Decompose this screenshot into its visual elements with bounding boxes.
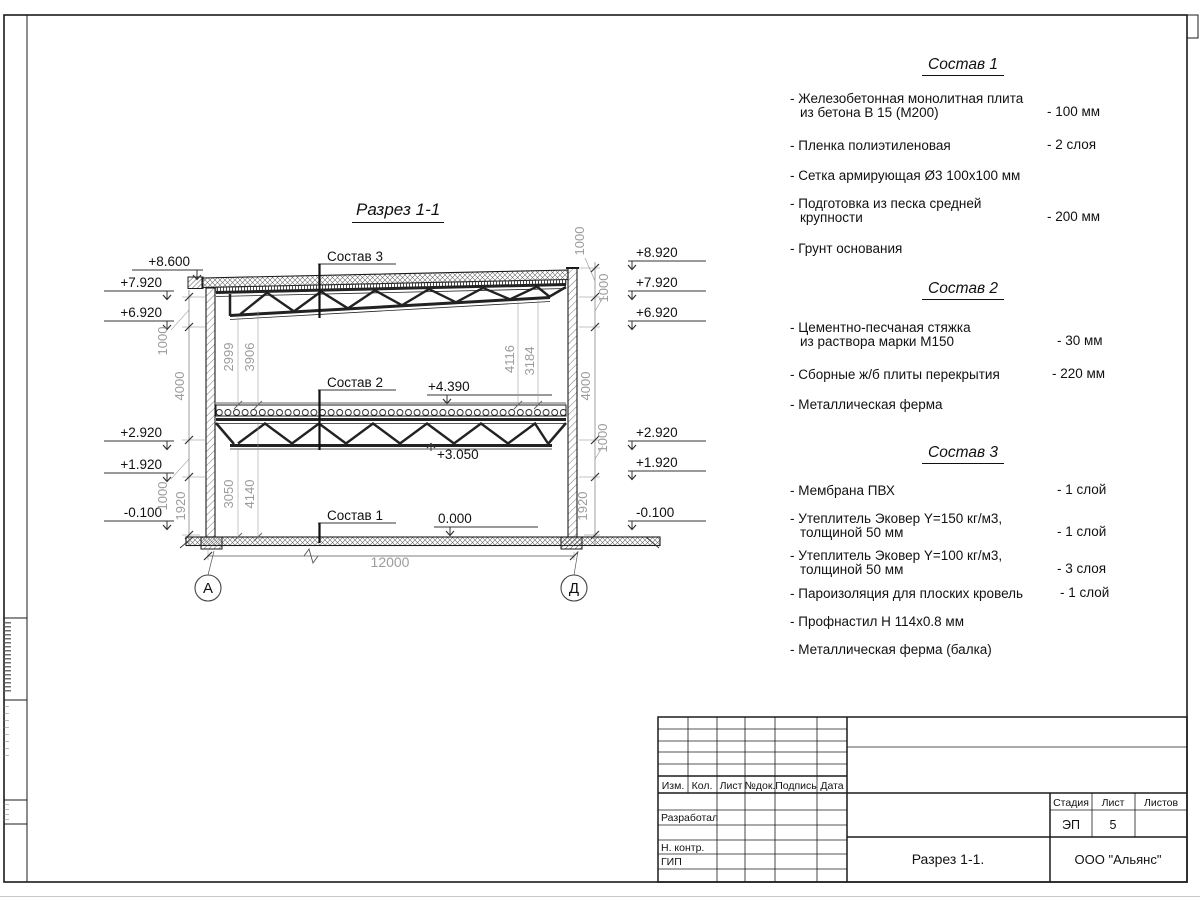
sostav1-label: Состав 1 xyxy=(327,508,383,523)
elev-r-8920: +8.920 xyxy=(628,245,706,270)
item-line: - Металлическая ферма xyxy=(790,398,1190,412)
item-value: - 100 мм xyxy=(1047,105,1100,119)
ground-slab xyxy=(180,537,660,549)
elev-l-1920: +1.920 xyxy=(104,457,174,482)
item-line: - Профнастил Н 114х0.8 мм xyxy=(790,615,1190,629)
tb-col-izm: Изм. xyxy=(662,780,685,792)
list-item: - Утеплитель Эковер Y=100 кг/м3, толщино… xyxy=(790,549,1190,577)
item-value: - 1 слой xyxy=(1057,483,1106,497)
list-item: - Пароизоляция для плоских кровель - 1 с… xyxy=(790,587,1190,601)
tb-sheet-value: 5 xyxy=(1110,818,1117,832)
dim-text: 1000 xyxy=(596,274,611,303)
item-line: крупности xyxy=(790,211,1190,225)
dim-text: 3050 xyxy=(221,480,236,509)
composition-title-text: Состав 1 xyxy=(922,56,1004,76)
dim-text: 1000 xyxy=(155,482,170,511)
composition-3-title: Состав 3 xyxy=(770,446,1156,460)
dim-chain-left: 1000 4000 1000 1920 xyxy=(155,290,206,545)
dim-text: 1000 xyxy=(155,327,170,356)
list-item: - Профнастил Н 114х0.8 мм xyxy=(790,615,1190,629)
elevation-marks-left: +8.600 +7.920 +6.920 xyxy=(104,254,203,530)
tb-stage-value: ЭП xyxy=(1062,818,1080,832)
list-item: - Утеплитель Эковер Y=150 кг/м3, толщино… xyxy=(790,512,1190,540)
item-value: - 30 мм xyxy=(1057,334,1103,348)
level-floor1: 0.000 xyxy=(438,511,472,526)
elev-text: +7.920 xyxy=(636,275,678,290)
item-value: - 1 слой xyxy=(1060,586,1109,600)
list-item: - Сборные ж/б плиты перекрытия - 220 мм xyxy=(790,368,1190,382)
elev-l-6920: +6.920 xyxy=(104,305,174,330)
item-line: - Пароизоляция для плоских кровель xyxy=(790,587,1190,601)
list-item: - Грунт основания xyxy=(790,242,1190,256)
dim-text: 1000 xyxy=(572,227,587,256)
elev-text: +8.600 xyxy=(148,254,190,269)
list-item: - Цементно-песчаная стяжка из раствора м… xyxy=(790,321,1190,349)
item-line: - Сетка армирующая Ø3 100х100 мм xyxy=(790,169,1190,183)
left-stamp-text-block xyxy=(3,804,9,820)
sostav2-label: Состав 2 xyxy=(327,375,383,390)
floor-truss xyxy=(216,420,566,450)
elev-text: +1.920 xyxy=(120,457,162,472)
list-item: - Металлическая ферма xyxy=(790,398,1190,412)
list-item: - Железобетонная монолитная плита из бет… xyxy=(790,92,1190,120)
elev-l-2920: +2.920 xyxy=(104,425,174,450)
elev-l-7920: +7.920 xyxy=(104,275,174,300)
item-value: - 1 слой xyxy=(1057,525,1106,539)
item-line: - Грунт основания xyxy=(790,242,1190,256)
list-item: - Подготовка из песка средней крупности … xyxy=(790,197,1190,225)
item-line: - Металлическая ферма (балка) xyxy=(790,643,1190,657)
item-line: толщиной 50 мм xyxy=(790,563,1190,577)
item-line: - Утеплитель Эковер Y=150 кг/м3, xyxy=(790,512,1190,526)
item-value: - 2 слоя xyxy=(1047,138,1096,152)
left-stamp-text-block xyxy=(3,706,9,758)
title-block: Изм. Кол. Лист №док. Подпись Дата Разраб… xyxy=(658,717,1187,882)
tb-col-data: Дата xyxy=(820,780,843,792)
elev-r-0100: -0.100 xyxy=(628,505,706,530)
tb-doc-title: Разрез 1-1. xyxy=(912,851,985,867)
level-floor2: +4.390 xyxy=(428,379,470,394)
item-line: - Мембрана ПВХ xyxy=(790,484,1190,498)
dim-text: 4116 xyxy=(502,345,517,373)
tb-sheet-label: Лист xyxy=(1102,797,1125,809)
tb-col-kol: Кол. xyxy=(692,780,713,792)
left-stamp-text-block xyxy=(3,622,11,694)
axis-d-label: Д xyxy=(569,580,579,597)
list-item: - Пленка полиэтиленовая - 2 слоя xyxy=(790,139,1190,153)
item-value: - 200 мм xyxy=(1047,210,1100,224)
item-value: - 3 слоя xyxy=(1057,562,1106,576)
elev-text: +2.920 xyxy=(636,425,678,440)
tb-row-nkontr: Н. контр. xyxy=(661,842,704,854)
level-truss2: +3.050 xyxy=(437,447,479,462)
item-value: - 220 мм xyxy=(1052,367,1105,381)
item-line: - Сборные ж/б плиты перекрытия xyxy=(790,368,1190,382)
tb-row-gip: ГИП xyxy=(661,856,682,868)
tb-col-list: Лист xyxy=(720,780,743,792)
item-line: - Пленка полиэтиленовая xyxy=(790,139,1190,153)
tb-col-ndok: №док. xyxy=(745,780,776,792)
elev-r-2920: +2.920 xyxy=(628,425,706,450)
composition-title-text: Состав 3 xyxy=(922,444,1004,464)
floor-slab xyxy=(216,403,566,416)
tb-company: ООО "Альянс" xyxy=(1075,852,1162,867)
sostav3-label: Состав 3 xyxy=(327,249,383,264)
item-line: - Утеплитель Эковер Y=100 кг/м3, xyxy=(790,549,1190,563)
elev-text: +1.920 xyxy=(636,455,678,470)
dim-text: 4000 xyxy=(172,372,187,401)
building-section: Состав 3 Состав 2 Состав 1 +4.390 +3.050 xyxy=(104,227,706,601)
elev-r-7920: +7.920 xyxy=(628,275,706,300)
list-item: - Металлическая ферма (балка) xyxy=(790,643,1190,657)
list-item: - Мембрана ПВХ - 1 слой xyxy=(790,484,1190,498)
elev-r-1920: +1.920 xyxy=(628,455,706,480)
elev-text: +8.920 xyxy=(636,245,678,260)
composition-2-title: Состав 2 xyxy=(770,282,1156,296)
page-edge-line xyxy=(0,896,1200,897)
list-item: - Сетка армирующая Ø3 100х100 мм xyxy=(790,169,1190,183)
drawing-sheet: Состав 3 Состав 2 Состав 1 +4.390 +3.050 xyxy=(0,0,1200,900)
composition-1-title: Состав 1 xyxy=(770,58,1156,72)
item-line: - Цементно-песчаная стяжка xyxy=(790,321,1190,335)
elev-text: -0.100 xyxy=(636,505,674,520)
dim-text: 4000 xyxy=(578,372,593,401)
item-line: - Железобетонная монолитная плита xyxy=(790,92,1190,106)
tb-stage-label: Стадия xyxy=(1053,797,1089,809)
dim-text: 2999 xyxy=(221,343,236,372)
section-title: Разрез 1-1 xyxy=(352,200,444,223)
dim-text: 1920 xyxy=(173,492,188,521)
tb-col-podpis: Подпись xyxy=(775,780,817,792)
dim-text: 4140 xyxy=(242,480,257,509)
item-line: - Подготовка из песка средней xyxy=(790,197,1190,211)
tb-sheets-label: Листов xyxy=(1144,797,1179,809)
item-line: из бетона В 15 (М200) xyxy=(790,106,1190,120)
dim-span: 12000 xyxy=(204,549,578,570)
dim-chain-right: 1000 1000 4000 1000 1920 xyxy=(572,227,611,545)
elev-text: +7.920 xyxy=(120,275,162,290)
dim-text: 3184 xyxy=(522,347,537,376)
item-line: толщиной 50 мм xyxy=(790,526,1190,540)
walls xyxy=(206,268,579,537)
composition-title-text: Состав 2 xyxy=(922,280,1004,300)
elev-r-6920: +6.920 xyxy=(628,305,706,330)
elev-text: +6.920 xyxy=(636,305,678,320)
dim-text: 3906 xyxy=(242,343,257,372)
internal-levels: +4.390 +3.050 0.000 xyxy=(427,379,552,536)
elev-text: +6.920 xyxy=(120,305,162,320)
elevation-marks-right: +8.920 +7.920 +6.920 xyxy=(628,245,706,530)
dim-text: 1920 xyxy=(575,492,590,521)
item-line: из раствора марки М150 xyxy=(790,335,1190,349)
elev-text: +2.920 xyxy=(120,425,162,440)
axis-a-label: А xyxy=(203,580,213,597)
dim-text: 1000 xyxy=(595,424,610,453)
dim-span-text: 12000 xyxy=(371,554,410,570)
tb-row-razrabotal: Разработал xyxy=(661,812,718,824)
